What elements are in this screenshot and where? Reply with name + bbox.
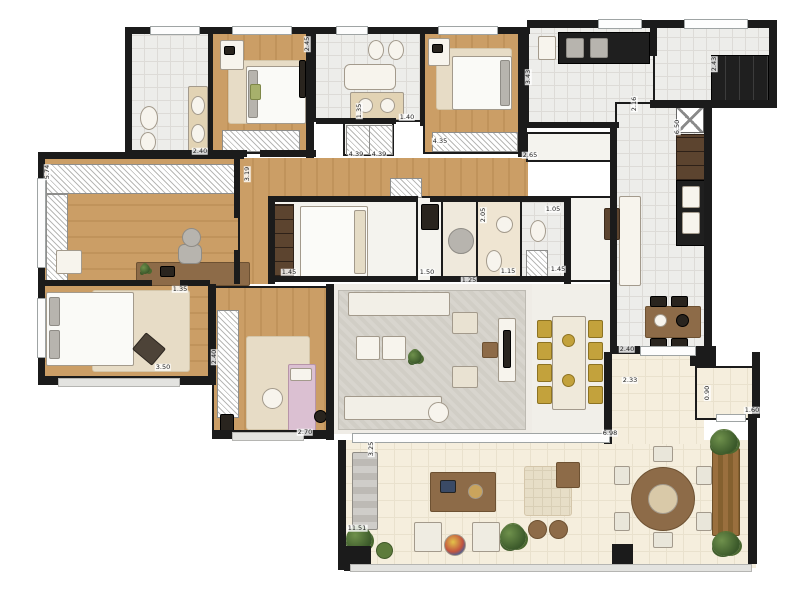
wall: [38, 152, 244, 159]
dimension-label: 2.16: [631, 96, 638, 112]
sink-icon: [380, 98, 395, 113]
centerpiece-icon: [562, 334, 575, 347]
kitchen-cabinets: [676, 134, 705, 180]
wall: [125, 27, 132, 157]
wall: [268, 276, 418, 282]
office-chair: [178, 244, 202, 264]
window: [232, 26, 292, 35]
sliding-door: [352, 433, 610, 443]
dimension-label: 2.43: [711, 56, 718, 72]
dimension-label: 3.43: [525, 69, 532, 85]
wall: [268, 196, 275, 284]
desk-items-icon: [224, 46, 235, 55]
dryer-icon: [590, 38, 608, 58]
dimension-label: 2.40: [211, 349, 218, 365]
dimension-label: 2.70: [297, 429, 313, 436]
chair: [696, 466, 712, 485]
laundry-sink-icon: [538, 36, 556, 60]
dimension-label: 2.05: [480, 207, 487, 223]
dimension-label: 1.25: [461, 277, 477, 284]
chair: [588, 320, 603, 338]
dimension-label: 1.45: [281, 269, 297, 276]
kitchen-sink-icon: [682, 212, 700, 234]
window: [598, 19, 642, 29]
bidet-icon: [388, 40, 404, 60]
dimension-label: 6.98: [602, 430, 618, 437]
wall: [650, 28, 657, 56]
toilet-icon: [368, 40, 384, 60]
dimension-label: 2.40: [619, 346, 635, 353]
kitchen-sink-icon: [682, 186, 700, 208]
toilet-icon: [530, 220, 546, 242]
bowl-icon: [676, 314, 689, 327]
pouf: [528, 520, 547, 539]
washer-icon: [566, 38, 584, 58]
desk: [220, 40, 244, 70]
dimension-label: 1.35: [172, 286, 188, 293]
window: [37, 298, 46, 358]
hall-closet: [390, 178, 422, 198]
bed-pillows: [354, 210, 366, 274]
dimension-label: 1.05: [545, 206, 561, 213]
lazy-susan-icon: [648, 484, 678, 514]
pouf: [549, 520, 568, 539]
built-in-closet: [528, 134, 612, 160]
side-table: [482, 342, 498, 358]
wardrobe: [217, 310, 239, 418]
wall: [769, 20, 777, 108]
dimension-label: 1.60: [744, 407, 760, 414]
accent-cushion: [250, 84, 261, 100]
wardrobe-dark: [274, 204, 294, 276]
bed-pillows: [49, 297, 60, 326]
sink-icon: [191, 124, 205, 143]
dimension-label: 1.15: [500, 268, 516, 275]
dimension-label: 0.90: [704, 385, 711, 401]
sofa: [348, 292, 450, 316]
dimension-label: 4.39: [348, 151, 364, 158]
wall: [610, 126, 617, 352]
chair: [537, 386, 552, 404]
kitchen-cabinet-white: [619, 196, 641, 286]
wall: [326, 284, 334, 440]
desk-items-icon: [432, 44, 443, 53]
planter-bench: [712, 448, 740, 536]
laptop-icon: [440, 480, 456, 493]
window-sill: [58, 378, 180, 387]
wall: [704, 100, 712, 352]
sink-icon: [496, 216, 513, 233]
dimension-label: 2.65: [522, 152, 538, 159]
dimension-label: 2.45: [304, 36, 311, 52]
plant-icon: [500, 524, 526, 550]
chair: [537, 342, 552, 360]
window: [684, 19, 748, 29]
tv-panel: [299, 60, 306, 98]
dimension-label: 5.74: [44, 164, 51, 180]
dimension-label: 2.33: [622, 377, 638, 384]
chair: [614, 466, 630, 485]
armchair: [472, 522, 500, 552]
side-table: [556, 462, 580, 488]
wall: [430, 276, 570, 282]
window: [716, 414, 746, 422]
plant-icon: [710, 430, 738, 454]
wardrobe: [46, 164, 236, 194]
dimension-label: 1.50: [419, 269, 435, 276]
chair: [653, 532, 673, 548]
window: [438, 26, 498, 35]
wall: [208, 32, 213, 154]
dimension-label: 2.40: [192, 148, 208, 155]
plant-pot-icon: [376, 542, 393, 559]
chair: [650, 296, 667, 307]
wall: [518, 27, 527, 157]
wall: [40, 280, 152, 286]
bed-pillows: [500, 60, 510, 106]
dimension-label: 11.51: [347, 525, 368, 532]
coffee-table: [356, 336, 380, 360]
wardrobe: [222, 130, 300, 152]
window: [336, 26, 368, 35]
plant-icon: [140, 264, 150, 274]
shower: [526, 250, 548, 278]
sofa: [344, 396, 442, 420]
mosaic-table: [444, 534, 466, 556]
floor-plan: 2.402.451.354.394.391.404.353.432.432.16…: [0, 0, 800, 600]
window: [37, 178, 46, 268]
dimension-label: 1.40: [399, 114, 415, 121]
chaise-lounge: [352, 452, 378, 530]
wall: [208, 284, 216, 384]
plant-icon: [712, 532, 740, 556]
plant-icon: [408, 350, 422, 364]
cabinet: [421, 204, 439, 230]
tv-icon: [503, 330, 511, 368]
pouf: [56, 250, 82, 274]
armchair: [414, 522, 442, 552]
coffee-table: [382, 336, 406, 360]
dimension-label: 1.45: [550, 266, 566, 273]
main-hall: [238, 158, 528, 198]
sink-icon: [191, 96, 205, 115]
tray-icon: [468, 484, 483, 499]
plate-icon: [654, 314, 667, 327]
chair: [537, 364, 552, 382]
dining-table: [552, 316, 586, 410]
bathtub-icon: [344, 64, 396, 90]
chair: [653, 446, 673, 462]
chair: [588, 342, 603, 360]
sliding-door: [640, 346, 696, 356]
chair: [588, 386, 603, 404]
armchair: [452, 312, 478, 334]
bed-pillows: [49, 330, 60, 359]
window: [150, 26, 200, 35]
dimension-label: 4.39: [371, 151, 387, 158]
window-sill: [232, 432, 304, 441]
chair: [588, 364, 603, 382]
grill-counter: [711, 55, 769, 102]
wall: [430, 196, 570, 202]
round-rug: [448, 228, 474, 254]
terrace-railing: [350, 564, 752, 572]
chair: [614, 512, 630, 531]
round-side-table: [428, 402, 449, 423]
wall: [527, 122, 619, 128]
dimension-label: 6.50: [674, 119, 681, 135]
wall: [234, 158, 240, 218]
chair: [696, 512, 712, 531]
centerpiece-icon: [562, 374, 575, 387]
dimension-label: 3.25: [368, 441, 375, 457]
chair: [537, 320, 552, 338]
wall: [268, 196, 418, 202]
laptop-icon: [160, 266, 175, 277]
toilet-icon: [140, 106, 158, 130]
round-table: [262, 388, 283, 409]
armchair: [452, 366, 478, 388]
dimension-label: 4.35: [432, 138, 448, 145]
wall: [420, 32, 425, 126]
wall: [748, 414, 757, 564]
wall: [260, 150, 316, 157]
wall: [234, 250, 240, 284]
round-pouf: [182, 228, 201, 247]
chair: [671, 296, 688, 307]
bidet-icon: [140, 132, 156, 152]
bed-pillows: [290, 368, 312, 381]
wall: [650, 100, 777, 108]
dimension-label: 3.50: [155, 364, 171, 371]
dimension-label: 1.35: [356, 103, 363, 119]
dimension-label: 3.19: [244, 166, 251, 182]
